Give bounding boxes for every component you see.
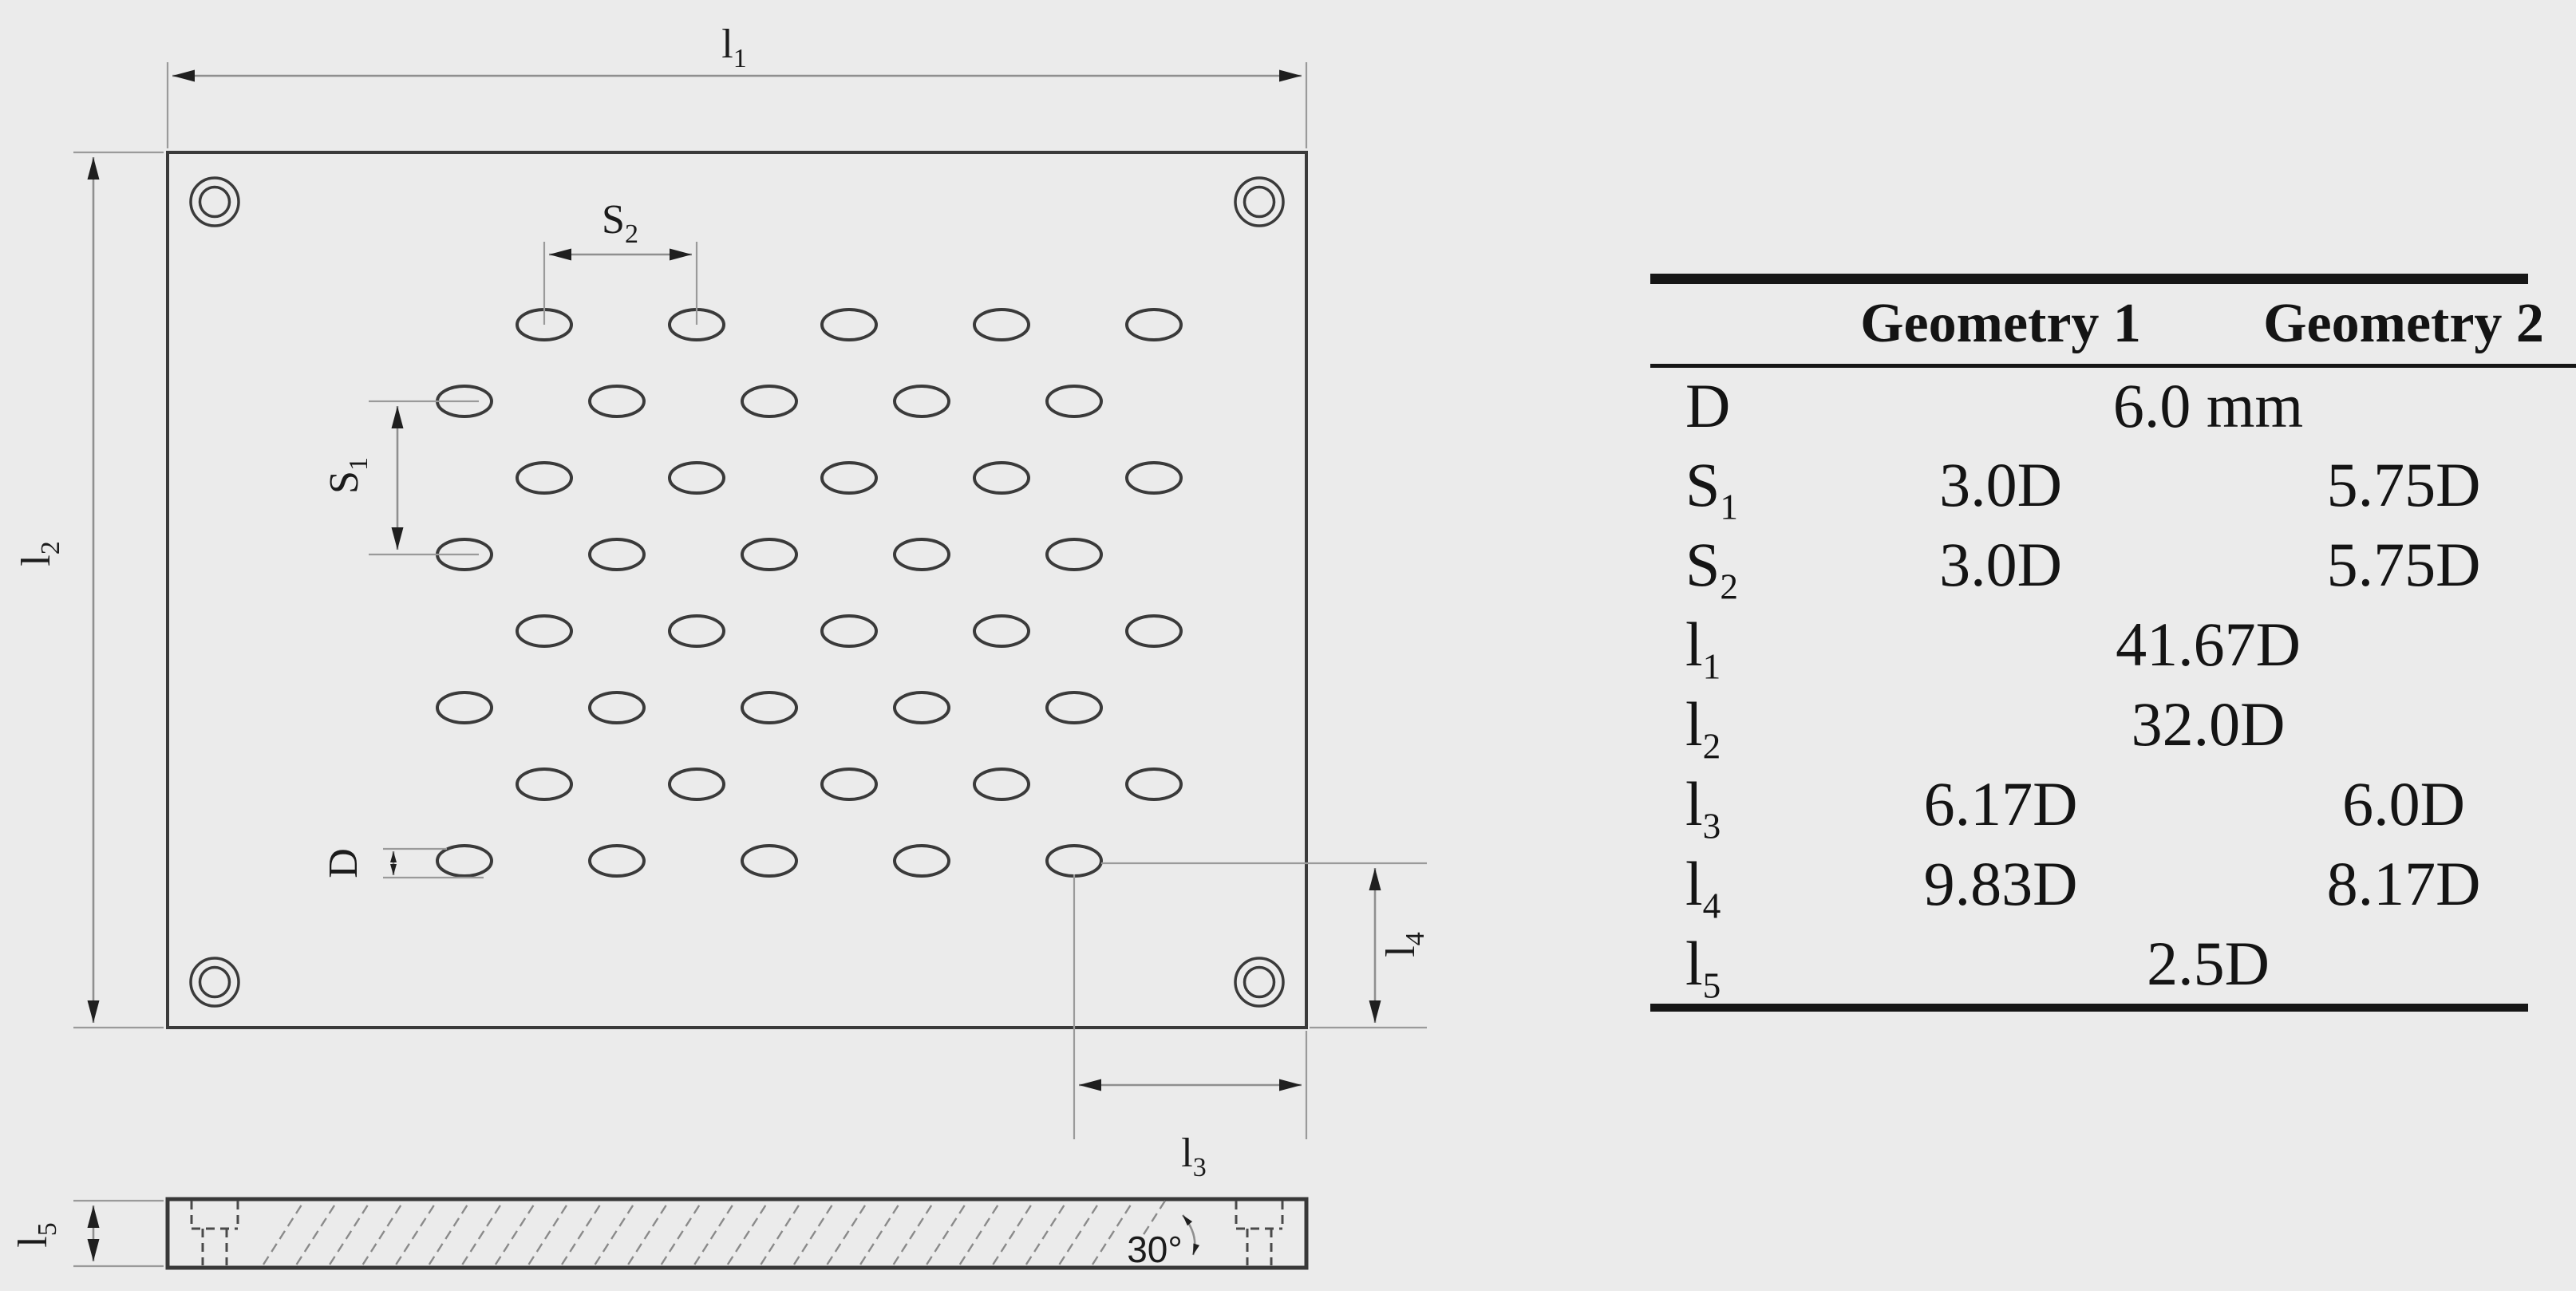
table-row-l2: l2 32.0D bbox=[1650, 685, 2576, 764]
hole bbox=[437, 693, 492, 723]
hatch-line bbox=[330, 1202, 369, 1265]
dim-l4-label: l4 bbox=[1378, 932, 1430, 957]
hatch-line bbox=[429, 1202, 469, 1265]
cell-geometry-1: 6.17D bbox=[1821, 764, 2180, 844]
hole bbox=[974, 769, 1029, 799]
header-empty bbox=[1650, 284, 1821, 365]
cell-value: 32.0D bbox=[1821, 685, 2576, 764]
hatch-line bbox=[562, 1202, 602, 1265]
hatch-line bbox=[894, 1202, 934, 1265]
counterbore-left bbox=[192, 1201, 238, 1265]
dim-l1-label: l1 bbox=[721, 22, 746, 73]
table-row-l1: l1 41.67D bbox=[1650, 605, 2576, 685]
hatch-line bbox=[761, 1202, 800, 1265]
cell-geometry-1: 3.0D bbox=[1821, 525, 2180, 605]
dim-l2: l2 bbox=[14, 152, 164, 1028]
hatch-line bbox=[396, 1202, 436, 1265]
figure-drawing: l1 l2 S2 S1 D bbox=[0, 0, 1516, 1314]
dim-s2-label: S2 bbox=[602, 197, 638, 249]
table-row-d: D 6.0 mm bbox=[1650, 365, 2576, 445]
hole bbox=[895, 386, 949, 416]
hole bbox=[517, 463, 571, 493]
hole bbox=[974, 463, 1029, 493]
hole bbox=[895, 846, 949, 876]
header-geometry-1: Geometry 1 bbox=[1821, 284, 2180, 365]
hatch-line bbox=[794, 1202, 834, 1265]
row-label: l2 bbox=[1650, 685, 1821, 764]
hole-pattern bbox=[437, 310, 1181, 876]
hole bbox=[590, 386, 644, 416]
hole bbox=[822, 310, 876, 340]
row-label: S2 bbox=[1650, 525, 1821, 605]
hole bbox=[670, 769, 724, 799]
hole bbox=[895, 693, 949, 723]
row-label: S1 bbox=[1650, 445, 1821, 525]
hatch-line bbox=[363, 1202, 403, 1265]
hatch-line bbox=[662, 1202, 701, 1265]
table-row-s2: S2 3.0D 5.75D bbox=[1650, 525, 2576, 605]
hatch-line bbox=[297, 1202, 337, 1265]
table-row-l4: l4 9.83D 8.17D bbox=[1650, 844, 2576, 924]
hatch-line bbox=[860, 1202, 900, 1265]
hole bbox=[822, 616, 876, 646]
dim-l5-label: l5 bbox=[10, 1222, 62, 1247]
hole bbox=[974, 616, 1029, 646]
cell-geometry-2: 5.75D bbox=[2180, 445, 2576, 525]
cell-geometry-2: 6.0D bbox=[2180, 764, 2576, 844]
dim-l1: l1 bbox=[168, 22, 1306, 148]
mounting-hole-bottom-left bbox=[191, 958, 239, 1006]
hole bbox=[1047, 693, 1101, 723]
table-row-l3: l3 6.17D 6.0D bbox=[1650, 764, 2576, 844]
hole bbox=[822, 769, 876, 799]
hole bbox=[590, 539, 644, 570]
hatch-line bbox=[263, 1202, 303, 1265]
dim-d: D bbox=[321, 848, 484, 878]
dim-l5: l5 bbox=[10, 1201, 164, 1266]
hole bbox=[1127, 769, 1181, 799]
hole bbox=[590, 693, 644, 723]
mounting-hole-bottom-right bbox=[1235, 958, 1283, 1006]
hatch-line bbox=[728, 1202, 768, 1265]
hatch-lines bbox=[263, 1202, 1132, 1265]
hole bbox=[1047, 846, 1101, 876]
hole bbox=[1127, 310, 1181, 340]
mounting-hole-top-right bbox=[1235, 178, 1283, 226]
dim-l2-label: l2 bbox=[14, 541, 65, 566]
dim-l3-label: l3 bbox=[1181, 1131, 1206, 1182]
row-label: l1 bbox=[1650, 605, 1821, 685]
cell-value: 41.67D bbox=[1821, 605, 2576, 685]
cell-value: 6.0 mm bbox=[1821, 365, 2576, 445]
table-header-row: Geometry 1 Geometry 2 bbox=[1650, 284, 2576, 365]
cell-geometry-1: 3.0D bbox=[1821, 445, 2180, 525]
hatch-line bbox=[595, 1202, 635, 1265]
dim-s2: S2 bbox=[544, 197, 697, 325]
hole bbox=[1047, 539, 1101, 570]
hole bbox=[742, 386, 796, 416]
hole bbox=[895, 539, 949, 570]
hatch-line bbox=[528, 1202, 568, 1265]
hole bbox=[517, 769, 571, 799]
cell-geometry-1: 9.83D bbox=[1821, 844, 2180, 924]
hole bbox=[517, 616, 571, 646]
dim-s1: S1 bbox=[322, 401, 479, 554]
table-row-l5: l5 2.5D bbox=[1650, 924, 2576, 1004]
hole bbox=[822, 463, 876, 493]
hole bbox=[437, 846, 492, 876]
hole bbox=[742, 539, 796, 570]
hatch-line bbox=[462, 1202, 502, 1265]
hole bbox=[742, 693, 796, 723]
header-geometry-2: Geometry 2 bbox=[2180, 284, 2576, 365]
row-label: l5 bbox=[1650, 924, 1821, 1004]
hatch-line bbox=[993, 1202, 1033, 1265]
hatch-line bbox=[828, 1202, 867, 1265]
hole bbox=[742, 846, 796, 876]
dim-angle-30: 30° bbox=[1127, 1215, 1195, 1270]
hole bbox=[1127, 616, 1181, 646]
table-row-s1: S1 3.0D 5.75D bbox=[1650, 445, 2576, 525]
cell-geometry-2: 5.75D bbox=[2180, 525, 2576, 605]
angle-arc-arrow bbox=[1183, 1215, 1195, 1255]
hole bbox=[670, 463, 724, 493]
hole bbox=[590, 846, 644, 876]
hatch-line bbox=[960, 1202, 1000, 1265]
hole bbox=[974, 310, 1029, 340]
mounting-hole-top-left bbox=[191, 178, 239, 226]
hatch-line bbox=[1059, 1202, 1099, 1265]
plate-outline bbox=[168, 152, 1306, 1028]
dim-d-label: D bbox=[321, 848, 366, 878]
cell-value: 2.5D bbox=[1821, 924, 2576, 1004]
hole bbox=[670, 616, 724, 646]
hatch-line bbox=[628, 1202, 668, 1265]
counterbore-right bbox=[1236, 1201, 1282, 1265]
hatch-line bbox=[1026, 1202, 1066, 1265]
row-label: D bbox=[1650, 365, 1821, 445]
row-label: l4 bbox=[1650, 844, 1821, 924]
angle-label: 30° bbox=[1127, 1229, 1183, 1270]
front-view: l1 l2 S2 S1 D bbox=[14, 22, 1430, 1182]
cell-geometry-2: 8.17D bbox=[2180, 844, 2576, 924]
hole bbox=[1047, 386, 1101, 416]
hatch-line bbox=[926, 1202, 966, 1265]
hatch-line bbox=[496, 1202, 535, 1265]
section-view: l5 30° bbox=[10, 1199, 1306, 1270]
hatch-line bbox=[694, 1202, 734, 1265]
dim-s1-label: S1 bbox=[322, 457, 373, 494]
row-label: l3 bbox=[1650, 764, 1821, 844]
hole bbox=[1127, 463, 1181, 493]
bottom-margin bbox=[0, 1291, 2576, 1314]
dim-l4: l4 bbox=[1101, 863, 1430, 1028]
geometry-table: Geometry 1 Geometry 2 D 6.0 mm S1 3.0D 5… bbox=[1650, 274, 2528, 1012]
